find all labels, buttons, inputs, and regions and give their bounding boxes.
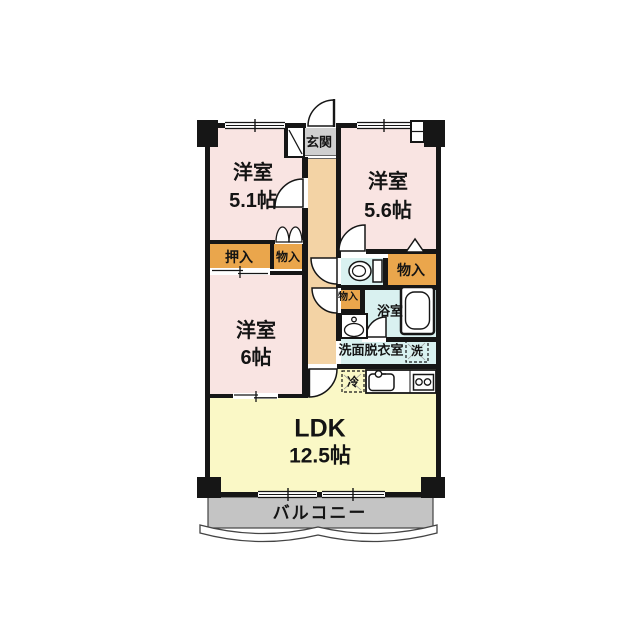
bathtub-icon (401, 287, 434, 334)
fridge-label: 冷 (347, 376, 359, 388)
pillar-top-right (424, 120, 445, 147)
monoire-c-label: 物入 (338, 293, 358, 303)
room51-name-label: 洋室 (233, 163, 273, 183)
ldk-name-label: LDK (294, 417, 345, 442)
ldk-size-label: 12.5帖 (289, 446, 351, 467)
oshiire-label: 押入 (225, 250, 253, 264)
monoire-a-label: 物入 (276, 251, 300, 263)
entrance-door-icon (308, 100, 334, 126)
pillar-bottom-right (421, 477, 445, 498)
washbasin-icon (341, 314, 367, 338)
shoe-cabinet-icon (287, 127, 304, 157)
room6-size-label: 6帖 (240, 348, 271, 368)
pillar-top-left (197, 120, 218, 147)
room6-name-label: 洋室 (236, 321, 276, 341)
room51-size-label: 5.1帖 (229, 191, 277, 211)
genkan-label: 玄関 (306, 136, 332, 149)
toilet-icon (349, 260, 382, 282)
room56-name-label: 洋室 (368, 172, 408, 192)
kitchen-sink-icon (369, 371, 394, 391)
washroom-label: 洗面脱衣室 (338, 344, 403, 357)
stove-icon (414, 375, 434, 391)
kitchen-counter-icon (366, 370, 436, 393)
floorplan-drawing (0, 0, 640, 640)
room56-size-label: 5.6帖 (364, 201, 412, 221)
monoire-b-label: 物入 (397, 263, 425, 277)
pillar-bottom-left (197, 477, 221, 498)
window-side-small (411, 121, 424, 142)
balcony-label: バルコニー (273, 505, 368, 522)
laundry-label: 洗 (411, 345, 423, 357)
floorplan-canvas: 洋室 5.1帖 洋室 5.6帖 洋室 6帖 LDK 12.5帖 玄関 押入 物入… (0, 0, 640, 640)
bath-label: 浴室 (377, 305, 403, 318)
